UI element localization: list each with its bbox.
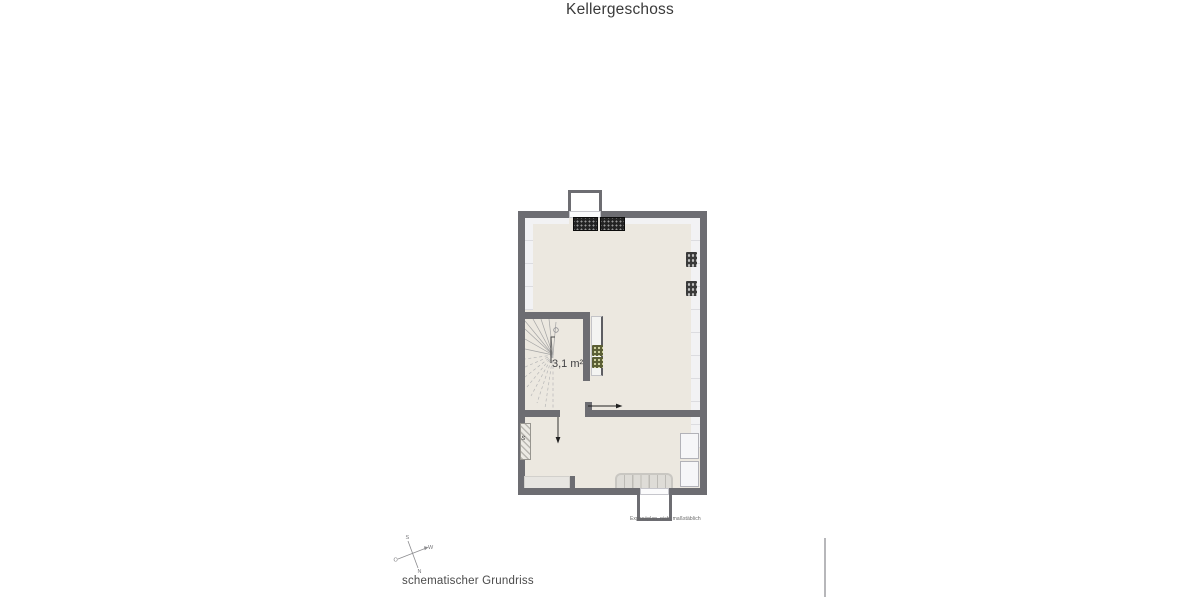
direction-arrows [518,190,707,525]
page-title: Kellergeschoss [520,1,720,19]
appliance-box-icon [680,461,699,487]
shelf-unit-icon [615,473,673,488]
compass-south-label: S [406,535,410,541]
page: Kellergeschoss [0,0,1200,600]
vertical-divider [824,538,826,597]
floor-plan: 3,1 m² S Exposéplan, nicht maßstäblich [518,190,707,525]
compass-east-label: O [394,558,399,564]
plan-disclaimer: Exposéplan, nicht maßstäblich [630,516,708,522]
compass-west-label: W [428,545,434,551]
storage-unit [524,476,570,488]
footer-label: schematischer Grundriss [402,575,534,587]
compass-rose-icon: S W O N [390,530,438,578]
appliance-box-icon [680,433,699,459]
